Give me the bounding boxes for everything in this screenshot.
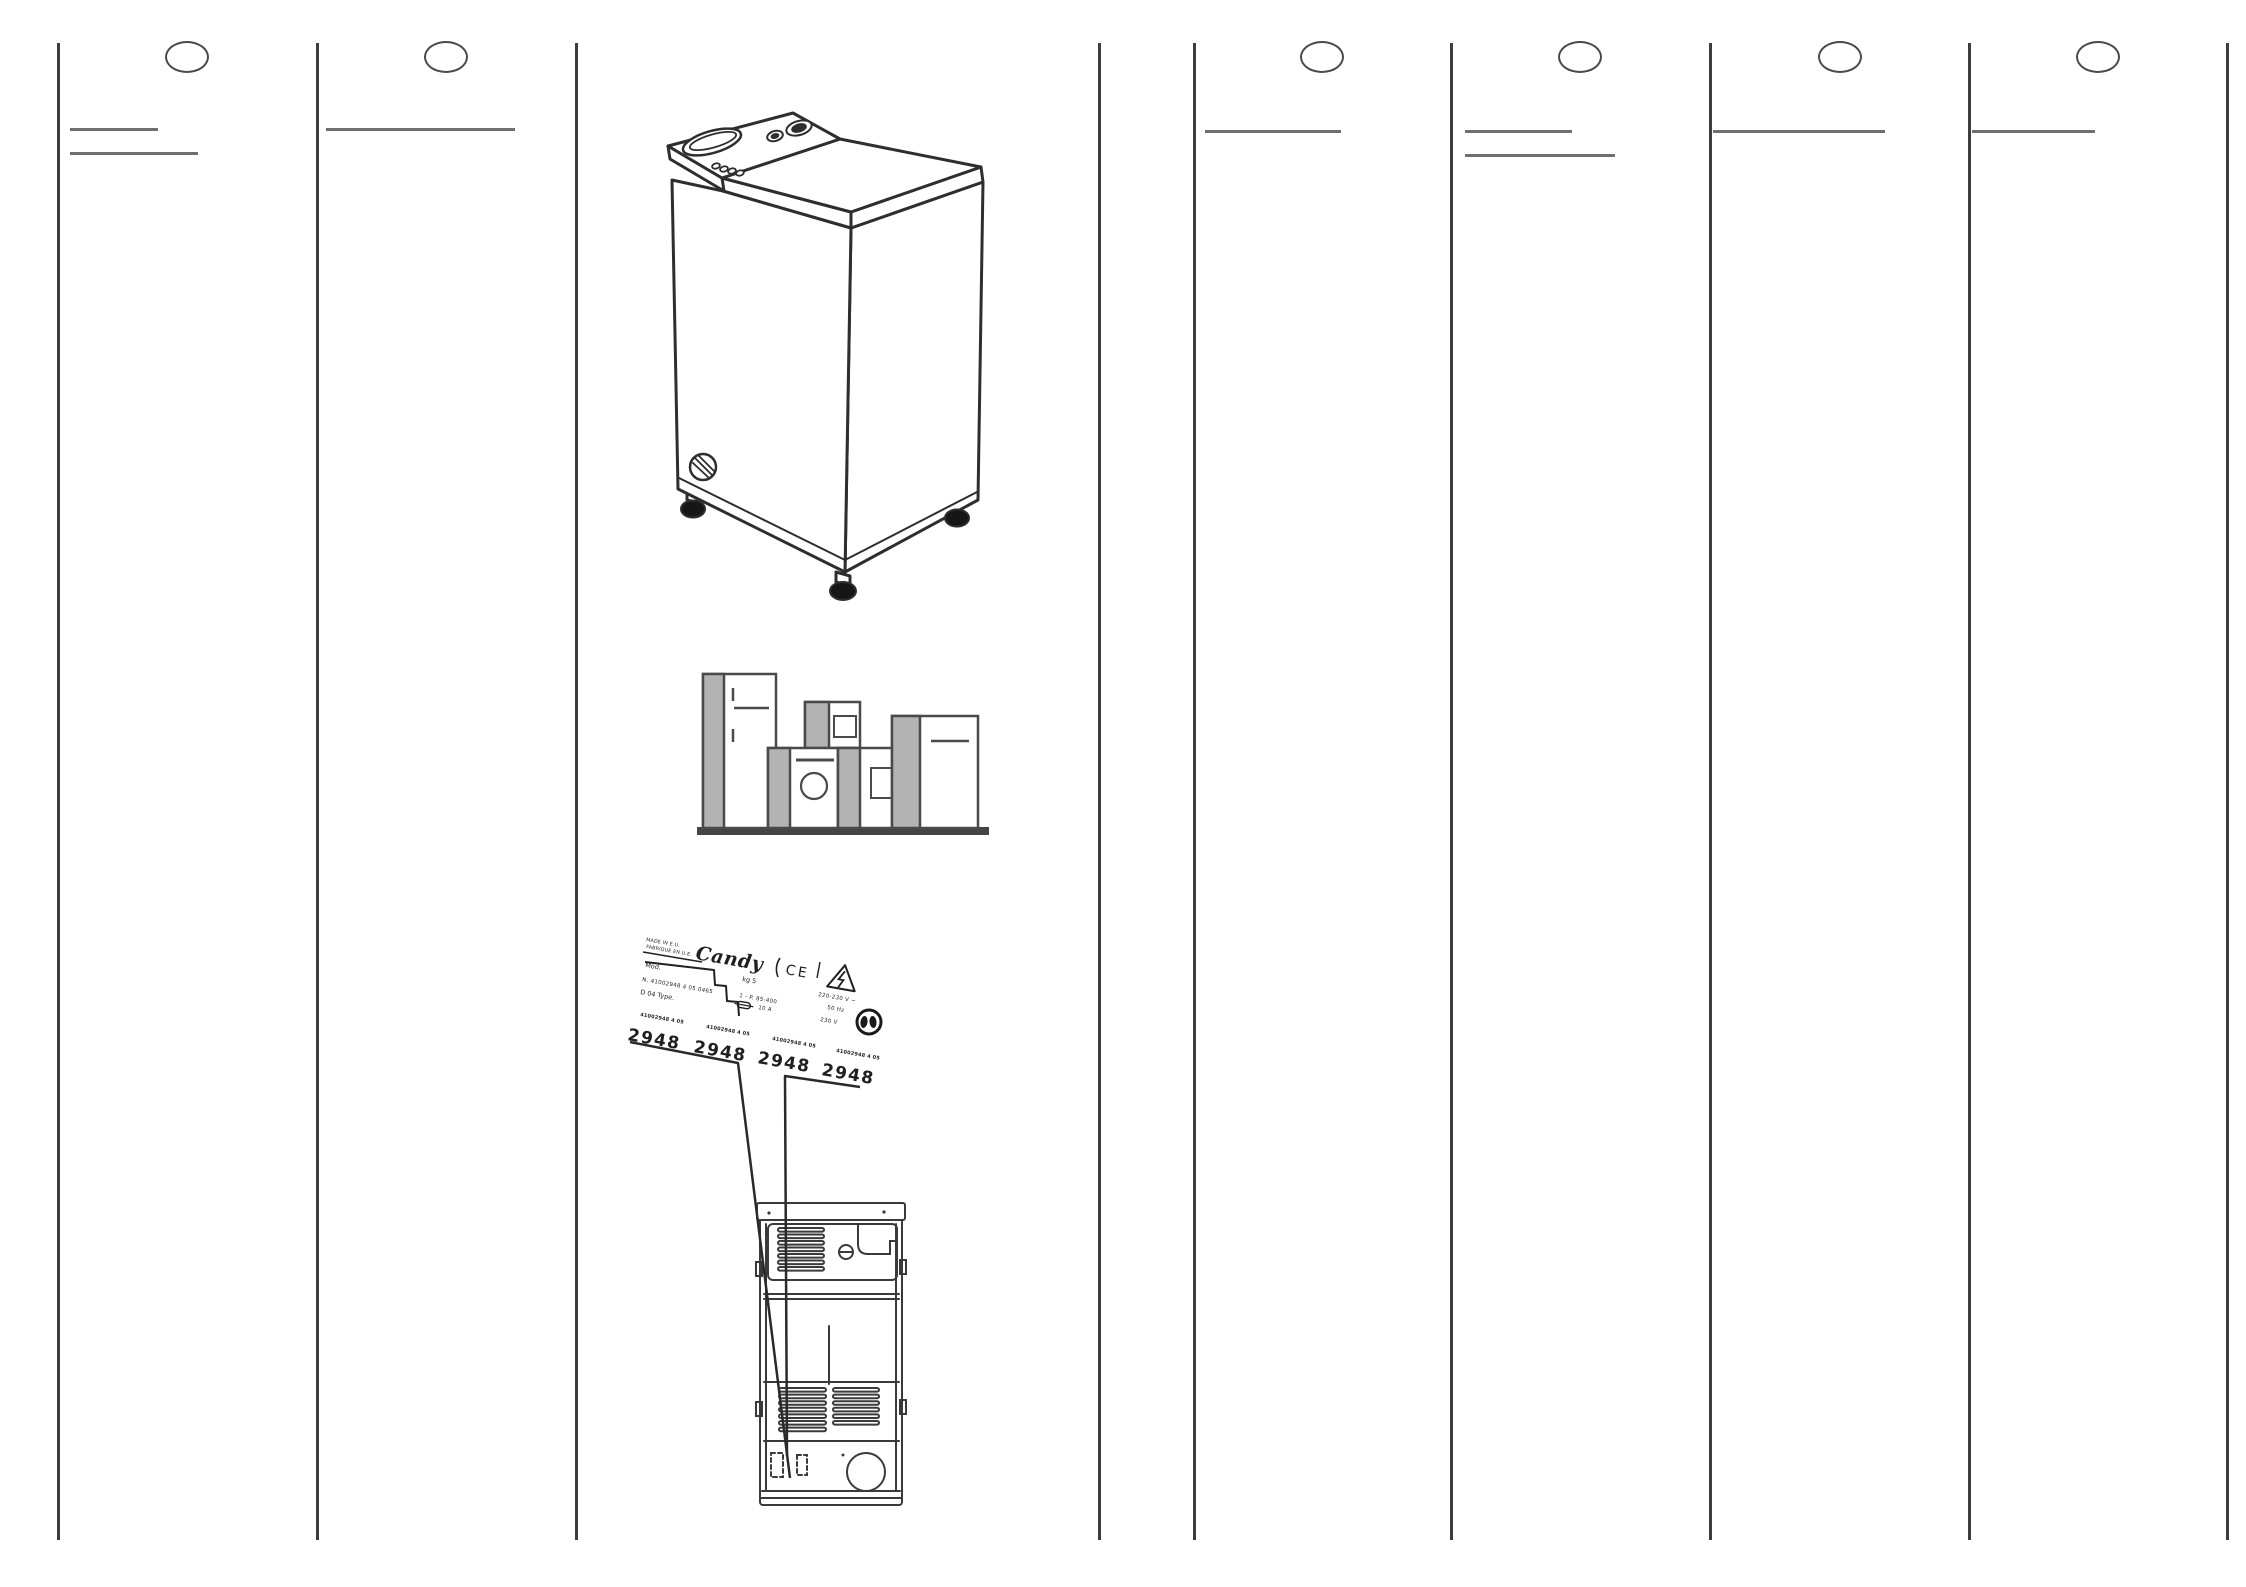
freezer-icon — [892, 716, 978, 828]
ce-mark: CE — [784, 962, 810, 982]
washer-foot — [945, 510, 969, 527]
page-number-circle — [1558, 41, 1602, 73]
page-number-circle — [1818, 41, 1862, 73]
plate-amps: 10 A — [758, 1005, 773, 1013]
column-separator — [1450, 43, 1453, 1540]
plate-top-rule — [643, 952, 702, 962]
page-number-circle — [424, 41, 468, 73]
washer-foot — [681, 501, 705, 518]
fuse-icon — [734, 1000, 754, 1009]
machine-rear-view-figure — [745, 1190, 915, 1515]
washing-machine-icon — [768, 748, 838, 828]
plate-capacity: kg 5 — [742, 975, 757, 985]
heading-underline — [1465, 130, 1572, 133]
washing-machine-figure — [640, 100, 1000, 610]
manual-scan-page: MADE IN E.U. FABRIQUE EN U.E. Candy CE M… — [0, 0, 2246, 1587]
heading-underline — [1713, 130, 1885, 133]
column-separator — [1098, 43, 1101, 1540]
approval-mark-icon — [857, 1010, 881, 1034]
page-number-circle — [165, 41, 209, 73]
page-number-circle — [1300, 41, 1344, 73]
column-separator — [575, 43, 578, 1540]
plate-type: D 04 Type. — [640, 988, 675, 1002]
heading-underline — [1205, 130, 1341, 133]
plate-code-label: 41002948 4 05 — [772, 1036, 817, 1050]
plate-code: 2948 — [756, 1048, 812, 1077]
plate-code-label: 41002948 4 05 — [836, 1048, 881, 1062]
appliances-row-figure — [690, 660, 1000, 845]
heading-underline — [70, 152, 198, 155]
plate-made-in-2: FABRIQUE EN U.E. — [646, 944, 693, 958]
column-separator — [1709, 43, 1712, 1540]
heading-underline — [70, 128, 158, 131]
plate-code: 2948 — [820, 1060, 876, 1089]
plate-code: 2948 — [626, 1025, 682, 1054]
microwave-icon — [805, 702, 860, 748]
column-separator — [316, 43, 319, 1540]
heading-underline — [326, 128, 515, 131]
column-separator — [1193, 43, 1196, 1540]
ce-bracket — [776, 958, 780, 977]
ce-tick — [817, 962, 820, 978]
column-separator — [2226, 43, 2229, 1540]
plate-code: 2948 — [692, 1037, 748, 1066]
plate-step-border — [645, 962, 739, 1016]
heading-underline — [1465, 154, 1615, 157]
fridge-icon — [703, 674, 776, 828]
plate-frequency: 50 Hz — [827, 1005, 845, 1014]
plate-voltage: 220-230 V ~ — [818, 992, 857, 1005]
column-separator — [1968, 43, 1971, 1540]
page-number-circle — [2076, 41, 2120, 73]
column-separator — [57, 43, 60, 1540]
plate-serial: N. 41002948 4 05 0465 — [642, 977, 714, 995]
heading-underline — [1972, 130, 2095, 133]
brand-logo: Candy — [694, 942, 766, 976]
filter-cap — [690, 454, 716, 480]
warning-triangle-icon — [827, 963, 859, 991]
plate-made-in-1: MADE IN E.U. — [646, 937, 681, 949]
plate-voltage-2: 230 V — [820, 1017, 838, 1026]
plate-mod-label: Mod. — [645, 961, 662, 972]
plate-code-label: 41002948 4 05 — [706, 1024, 751, 1038]
plate-code-label: 41002948 4 05 — [640, 1012, 685, 1026]
washer-foot — [830, 582, 856, 600]
plate-power: 1 - P. 85-400 — [739, 993, 778, 1006]
